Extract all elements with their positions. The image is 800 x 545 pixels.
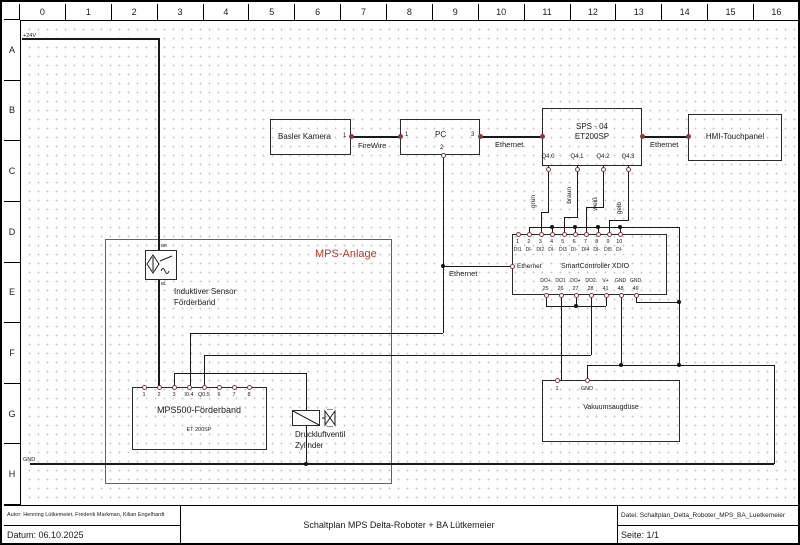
col-label: 15 [707,4,754,20]
kamera-pin-1: 1 [343,133,346,140]
col-label: 0 [19,4,66,20]
ethernet-label-hmi: Ethernet [650,141,678,150]
col-label: 8 [386,4,433,20]
xdio-top-pin [539,232,544,237]
xdio-top-pin [596,232,601,237]
pc-pin-3: 3 [471,132,474,139]
mps500-pin-label: Q0.5 [198,392,210,398]
junction-dot [573,225,577,229]
xdio-bottom-pin [589,293,594,298]
wire-q43-jog [609,220,629,221]
mps500-pin-label: 8 [247,392,250,398]
xdio-pin-label: DI- [523,247,534,253]
date-field: Datum: 06.10.2025 [4,526,180,545]
wire-gnd48-drop [621,295,622,365]
grid-column-header: 0 1 2 3 4 5 6 7 8 9 10 11 12 13 14 15 16 [20,4,800,21]
wire-q42-end [586,207,587,234]
valve-label-1: Druckluftventil [295,430,345,439]
xdio-top-pin [584,232,589,237]
xdio-pin-number: 10 [614,239,625,245]
xdio-bottom-pin [574,293,579,298]
xdio-top-pin [618,232,623,237]
sps-q41-label: Q4.1 [570,154,583,161]
xdio-pin-number: 49 [628,286,643,292]
junction-dot [441,264,445,268]
xdio-top-pin [607,232,612,237]
xdio-bottom-pin [619,293,624,298]
mps500-pin [232,385,237,390]
xdio-pin-number: 48 [613,286,628,292]
inductive-sensor-symbol[interactable] [145,250,177,280]
wire-firewire [351,136,400,138]
firewire-label: FireWire [358,142,386,151]
wire-q40-end [541,212,542,234]
sps-q40-label: Q4.0 [541,154,554,161]
xdio-pin-label: DI- [568,247,579,253]
wire-24v [22,38,159,40]
valve-icon [293,411,319,425]
wire-q42 [603,166,604,207]
xdio-pin-label: DI4 [580,247,591,253]
file-field: Datei: Schaltplan_Delta_Roboter_MPS_BA_L… [618,506,798,526]
col-label: 5 [248,4,295,20]
wire-color-gruen: grün [530,195,537,208]
xdio-pin-number: 9 [602,239,613,245]
wire-color-weiss: weiß [592,197,599,211]
col-label: 10 [478,4,525,20]
xdio-bottom-pin [604,293,609,298]
connector-dot [398,134,403,139]
vakuum-pin-1: 1 [555,386,558,392]
mps500-pin-label: 2 [157,392,160,398]
col-label: 7 [340,4,387,20]
connector-dot [640,134,645,139]
xdio-top-pin [527,232,532,237]
wire-pin3-to-valve [174,373,306,374]
wire-gnd-bus [30,463,774,465]
sensor-pin-bl: BL [161,281,167,286]
connector-dot [349,134,354,139]
xdio-top-labels: DI1 DI- DI2 DI- DI3 DI- DI4 DI- DI5 DI- [512,247,625,253]
sps-q-pin-circle [601,167,606,172]
title-block-left: Autor: Henning Lütkemeier, Frederik Mark… [4,506,181,544]
sps-q42-label: Q4.2 [596,154,609,161]
xdio-top-pin [516,232,521,237]
xdio-top-numbers: 1 2 3 4 5 6 7 8 9 10 [512,239,625,245]
xdio-top-pin [550,232,555,237]
sensor-label-1: Induktiver Sensor [174,287,236,296]
basler-kamera-label: Basler Kamera [278,132,331,141]
wire-q40 [548,166,549,212]
xdio-bottom-labels: DO+ DO1 DO+ DO2 V+ GND GND [538,278,643,284]
wire-do2-drop [591,295,592,355]
xdio-title: SmartController XDIO [561,263,629,271]
col-label: 12 [570,4,617,20]
col-label: 9 [432,4,479,20]
xdio-top-pin [573,232,578,237]
row-label: F [4,322,20,384]
col-label: 1 [65,4,112,20]
junction-dot [618,225,622,229]
wire-q40-jog [541,212,549,213]
wire-q41-jog [564,217,578,218]
xdio-pin-number: 4 [546,239,557,245]
title-block-right: Datei: Schaltplan_Delta_Roboter_MPS_BA_L… [618,506,798,544]
xdio-pin-number: 41 [598,286,613,292]
sensor-label-2: Förderband [174,298,215,307]
connector-dot [686,134,691,139]
wire-valve-top [306,373,307,410]
mps500-pin [157,385,162,390]
xdio-bottom-pin [634,293,639,298]
wire-sensor-upper [158,38,160,250]
xdio-pin-number: 5 [557,239,568,245]
xdio-pin-label: DI5 [602,247,613,253]
row-label: B [4,80,20,142]
xdio-pin-label: DI1 [512,247,523,253]
junction-dot [574,304,578,308]
mps500-pin [187,385,192,390]
xdio-pin-label: DO+ [568,278,583,284]
mps500-pin [172,385,177,390]
mps500-label: MPS500-Förderband [157,405,241,415]
wire-do1-to-vakuum [561,295,562,380]
row-label: D [4,201,20,263]
wire-ethernet-sps-hmi [642,136,688,138]
xdio-pin-number: 8 [591,239,602,245]
sps-q-pin-circle [546,167,551,172]
pc-pin-2: 2 [440,145,443,152]
wire-ethernet-pc-sps [480,136,542,138]
xdio-top-pin [562,232,567,237]
connector-dot [478,134,483,139]
ethernet-label-xdio: Ethernet [449,270,477,279]
author-field: Autor: Henning Lütkemeier, Frederik Mark… [4,506,180,526]
row-label: A [4,19,20,81]
page-field: Seite: 1/1 [618,526,798,545]
hmi-label: HMI-Touchpanel [706,132,764,141]
row-label: C [4,140,20,202]
pc-label: PC [435,130,446,139]
xdio-pin-label: DO2 [583,278,598,284]
col-label: 13 [615,4,662,20]
xdio-pin-number: 1 [512,239,523,245]
mps500-pin [217,385,222,390]
gnd-label: GND [23,457,35,463]
col-label: 3 [157,4,204,20]
xdio-pin-label: DO1 [553,278,568,284]
valve-label-2: Zylinder [295,441,323,450]
junction-dot [304,462,308,466]
mps500-pin [142,385,147,390]
vakuum-pin-gnd: GND [581,386,593,392]
junction-dot [677,300,681,304]
xdio-pin-number: 6 [568,239,579,245]
xdio-pin-number: 25 [538,286,553,292]
mps500-pin-label: 3 [172,392,175,398]
xdio-pin-number: 27 [568,286,583,292]
junction-dot [677,363,681,367]
xdio-pin-number: 7 [580,239,591,245]
inductive-sensor-icon [146,251,176,279]
xdio-bottom-pin [559,293,564,298]
xdio-pin-number: 2 [523,239,534,245]
mps500-pin-label: 1 [142,392,145,398]
title-block: Autor: Henning Lütkemeier, Frederik Mark… [4,505,798,544]
col-label: 2 [111,4,158,20]
wire-q05-drop [204,355,205,387]
xdio-pin-label: DI- [546,247,557,253]
sps-label-1: SPS - 04 [576,122,608,131]
mps500-pin-label: 7 [232,392,235,398]
xdio-pin-label: DO+ [538,278,553,284]
xdio-bottom-pin [544,293,549,298]
row-label: G [4,383,20,445]
xdio-pin-number: 3 [535,239,546,245]
v24-label: +24V [23,33,36,39]
col-label: 16 [753,4,800,20]
xdio-pin-label: DI- [614,247,625,253]
xdio-pin-label: GND [613,278,628,284]
xdio-bottom-numbers: 25 26 27 28 41 48 49 [538,286,643,292]
ethernet-label-pc: Ethernet [495,141,523,150]
mps500-pin [247,385,252,390]
pc-pin-1: 1 [405,132,408,139]
wire-pin49-jog [636,302,679,303]
wire-sensor-lower [158,280,160,387]
xdio-pin-number: 26 [553,286,568,292]
wire-gnd-right-drop [774,365,775,464]
druckluftventil-symbol[interactable] [292,410,320,426]
xdio-ethernet-pin-label: Ethernet [517,263,542,270]
col-label: 11 [524,4,571,20]
col-label: 14 [661,4,708,20]
wire-color-gelb: gelb [616,202,623,214]
vakuum-pin [555,378,560,383]
sps-q43-label: Q4.3 [621,154,634,161]
wire-pc-to-i04 [190,333,443,334]
xdio-pin-label: V+ [598,278,613,284]
schematic-sheet: 0 1 2 3 4 5 6 7 8 9 10 11 12 13 14 15 16… [0,0,800,545]
sps-label-2: ET200SP [575,132,609,141]
vakuum-label: Vakuumsaugdüse [583,404,639,412]
junction-dot [619,363,623,367]
wire-q41 [577,166,578,217]
mps500-pin-label: I0.4 [184,392,193,398]
row-label: E [4,262,20,324]
wire-dicommon-to-gnd [679,227,680,365]
mps500-pin-label: 6 [217,392,220,398]
row-label: H [4,443,20,505]
mps500-sub-label: ET 200SP [187,427,212,433]
grid-row-header: A B C D E F G H [4,20,20,505]
xdio-pin-label: DI3 [557,247,568,253]
xdio-ethernet-pin [510,264,515,269]
pc-pin2-circle [441,153,446,158]
wire-do2-to-q05 [204,355,591,356]
wire-color-braun: braun [566,187,573,204]
wire-ethernet-branch [443,266,512,267]
mps500-pin [202,385,207,390]
sensor-pin-br: BR [161,243,167,248]
junction-dot [596,225,600,229]
wire-pc-pin2 [443,155,444,333]
xdio-pin-label: GND [628,278,643,284]
xdio-pin-label: DI2 [535,247,546,253]
connector-dot [540,134,545,139]
valve-bowtie-icon [322,409,338,427]
xdio-pin-number: 28 [583,286,598,292]
mps-anlage-label: MPS-Anlage [315,248,377,261]
drawing-title: Schaltplan MPS Delta-Roboter + BA Lütkem… [181,506,618,544]
xdio-pin-label: DI- [591,247,602,253]
sps-q-pin-circle [626,167,631,172]
col-label: 6 [294,4,341,20]
wire-i04-drop [190,333,191,387]
col-label: 4 [203,4,250,20]
sps-q-pin-circle [575,167,580,172]
vakuum-pin [585,378,590,383]
junction-dot [550,225,554,229]
wire-q43 [628,166,629,220]
